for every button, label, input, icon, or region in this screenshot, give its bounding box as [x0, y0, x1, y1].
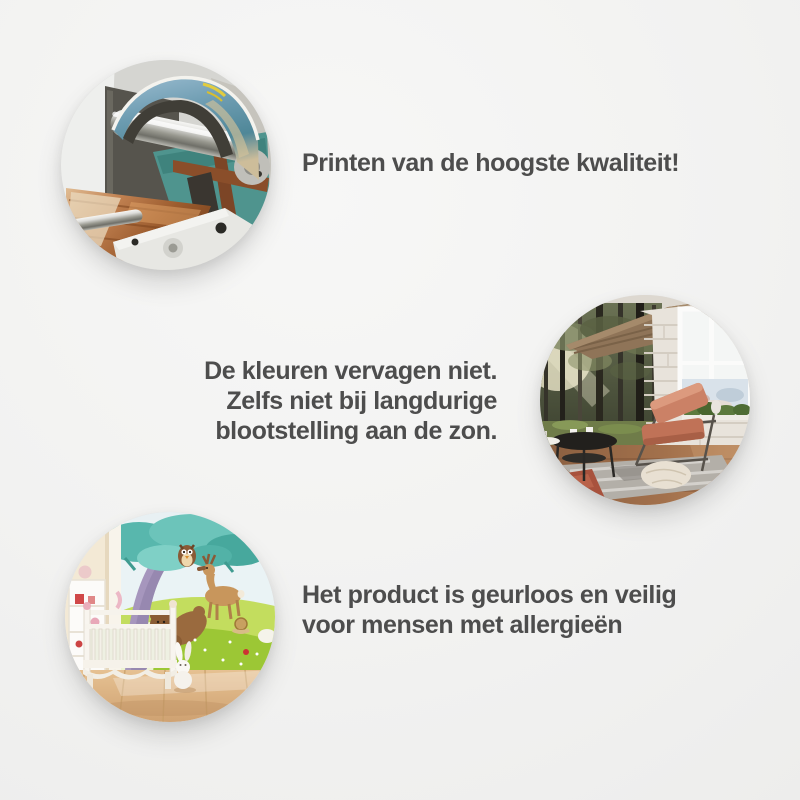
crib — [83, 600, 177, 689]
caption-line: Printen van de hoogste kwaliteit! — [302, 148, 679, 178]
photo-fade-resistant — [540, 295, 750, 505]
pillow — [641, 461, 691, 489]
caption-line: Zelfs niet bij langdurige — [140, 386, 497, 416]
caption-line: voor mensen met allergieën — [302, 610, 676, 640]
panel-highlight — [107, 90, 113, 200]
floor-cushion-highlight — [544, 474, 594, 493]
printer-illustration — [61, 60, 271, 270]
photo-print-quality — [61, 60, 271, 270]
owl — [178, 545, 196, 567]
photo-odorless-allergy-safe — [65, 512, 275, 722]
caption-odorless-safe: Het product is geurloos en veilig voor m… — [302, 580, 676, 640]
caption-line: Het product is geurloos en veilig — [302, 580, 676, 610]
nursery-illustration — [65, 512, 275, 722]
caption-print-quality: Printen van de hoogste kwaliteit! — [302, 148, 679, 178]
marketing-banner: Printen van de hoogste kwaliteit! De kle… — [0, 0, 800, 800]
caption-line: blootstelling aan de zon. — [140, 416, 497, 446]
interior-illustration — [540, 295, 750, 505]
caption-line: De kleuren vervagen niet. — [140, 356, 497, 386]
caption-fade-resistant: De kleuren vervagen niet. Zelfs niet bij… — [140, 356, 497, 446]
ladybug — [243, 649, 249, 655]
